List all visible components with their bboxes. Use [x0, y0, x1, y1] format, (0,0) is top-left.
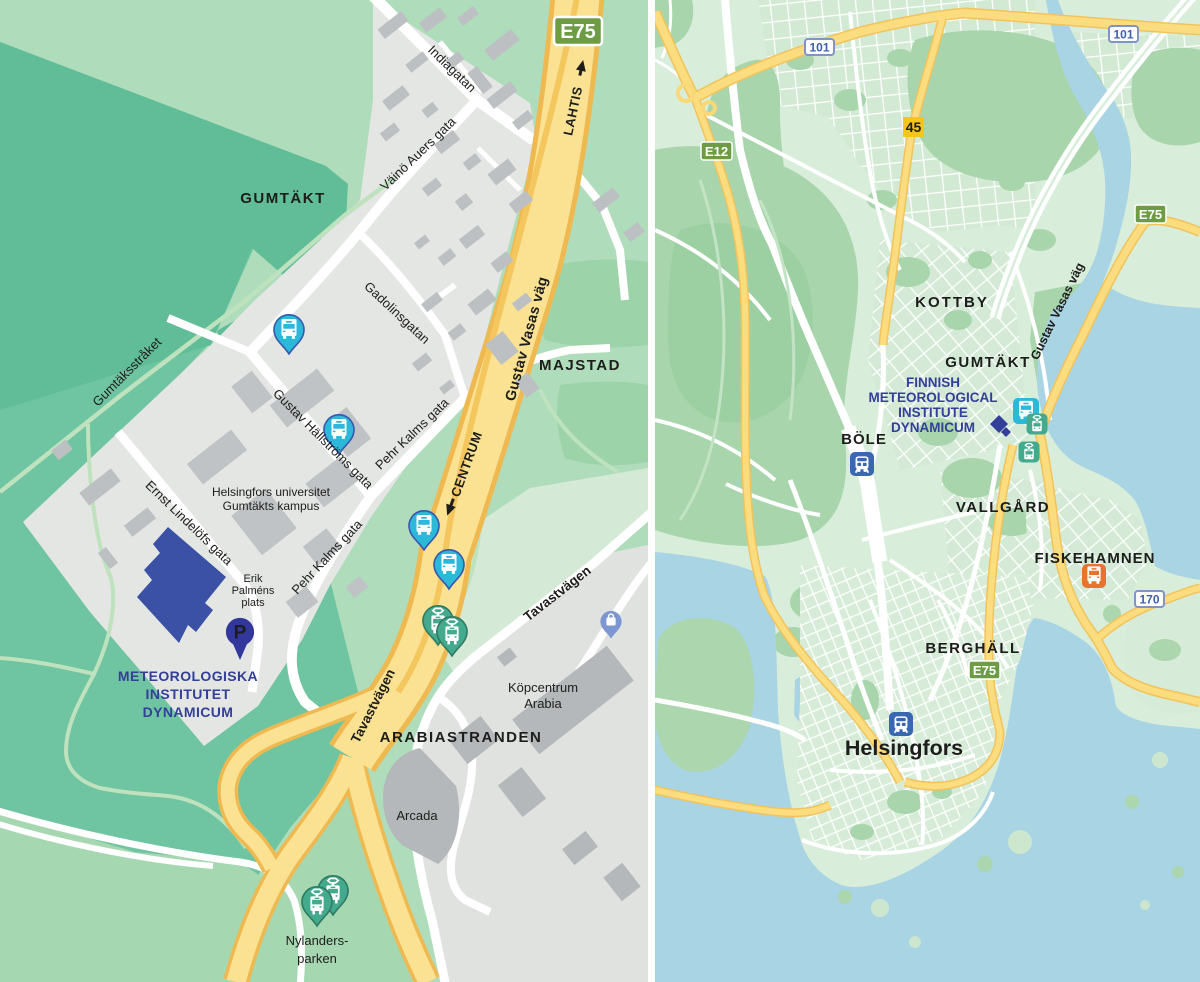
svg-text:Helsingfors universitet: Helsingfors universitet — [212, 485, 331, 499]
svg-text:E75: E75 — [973, 663, 996, 678]
svg-text:parken: parken — [297, 951, 337, 966]
svg-text:Arcada: Arcada — [396, 808, 438, 823]
svg-text:GUMTÄKT: GUMTÄKT — [240, 190, 326, 207]
svg-text:101: 101 — [1113, 28, 1133, 42]
svg-text:101: 101 — [809, 41, 829, 55]
svg-text:Köpcentrum: Köpcentrum — [508, 680, 578, 695]
svg-text:ARABIASTRANDEN: ARABIASTRANDEN — [380, 729, 543, 746]
svg-text:Nylanders-: Nylanders- — [286, 933, 349, 948]
svg-text:FINNISH: FINNISH — [906, 375, 960, 390]
svg-text:E12: E12 — [705, 144, 728, 159]
svg-text:Arabia: Arabia — [524, 696, 562, 711]
svg-text:BÖLE: BÖLE — [841, 431, 887, 448]
svg-text:Gumtäkts kampus: Gumtäkts kampus — [223, 499, 320, 513]
svg-text:Erik: Erik — [244, 573, 263, 585]
svg-text:E75: E75 — [560, 21, 596, 43]
svg-text:MAJSTAD: MAJSTAD — [539, 357, 621, 374]
svg-text:E75: E75 — [1139, 207, 1162, 222]
svg-text:Helsingfors: Helsingfors — [845, 736, 963, 760]
svg-text:plats: plats — [241, 597, 265, 609]
svg-text:METEOROLOGICAL: METEOROLOGICAL — [869, 390, 998, 405]
svg-text:INSTITUTET: INSTITUTET — [146, 686, 231, 702]
svg-text:KOTTBY: KOTTBY — [915, 294, 989, 311]
svg-text:GUMTÄKT: GUMTÄKT — [945, 354, 1031, 371]
svg-text:INSTITUTE: INSTITUTE — [898, 405, 968, 420]
svg-text:DYNAMICUM: DYNAMICUM — [891, 420, 975, 435]
svg-text:METEOROLOGISKA: METEOROLOGISKA — [118, 668, 258, 684]
svg-text:P: P — [234, 623, 247, 644]
svg-text:45: 45 — [906, 119, 922, 135]
svg-text:DYNAMICUM: DYNAMICUM — [143, 704, 234, 720]
svg-text:BERGHÄLL: BERGHÄLL — [925, 640, 1020, 657]
svg-text:170: 170 — [1139, 593, 1159, 607]
svg-text:VALLGÅRD: VALLGÅRD — [956, 499, 1050, 516]
svg-text:Palméns: Palméns — [232, 585, 275, 597]
